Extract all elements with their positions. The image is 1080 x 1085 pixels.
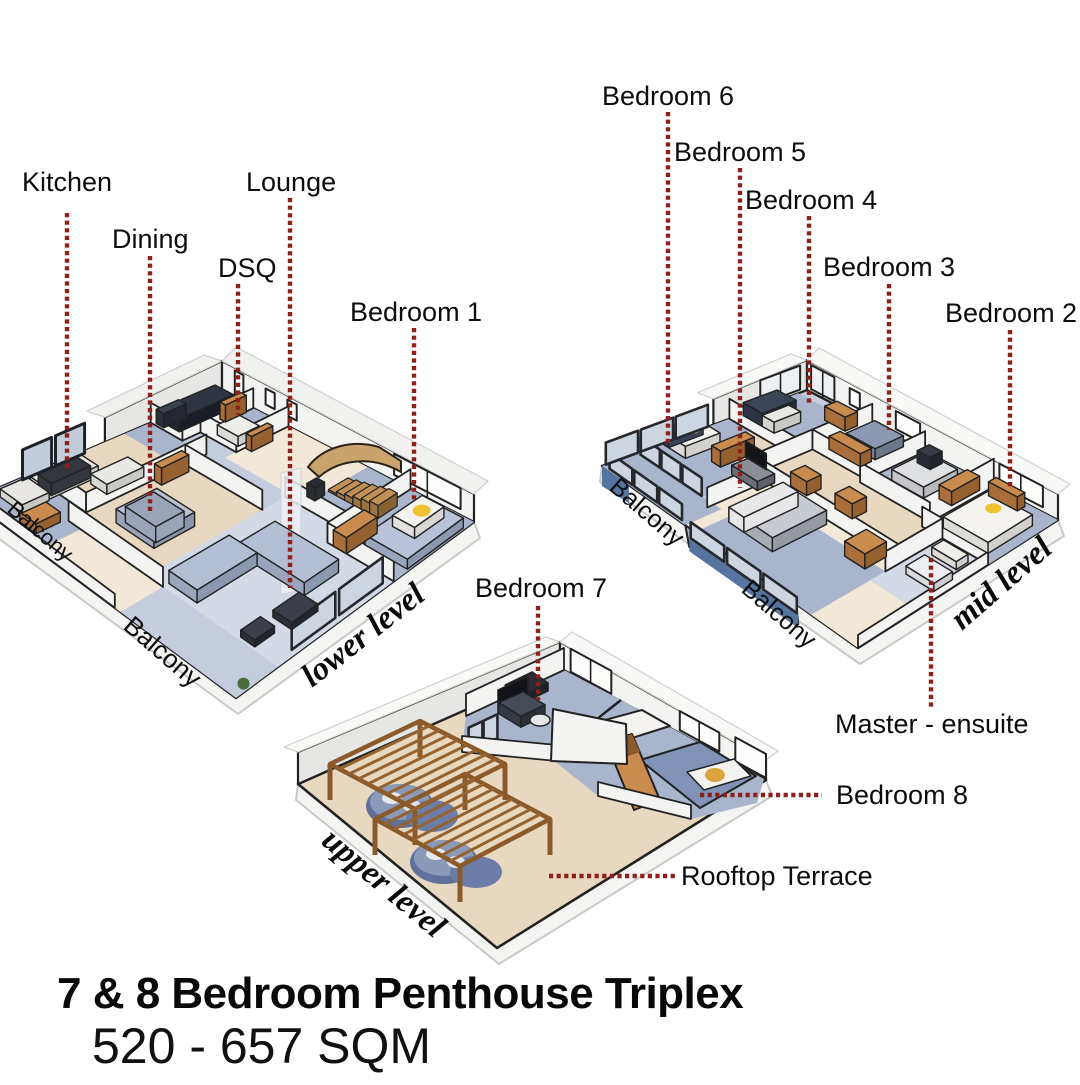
svg-text:Dining: Dining — [112, 224, 189, 254]
svg-text:7 & 8 Bedroom Penthouse Triple: 7 & 8 Bedroom Penthouse Triplex — [57, 969, 744, 1018]
svg-text:Master - ensuite: Master - ensuite — [835, 709, 1029, 739]
svg-text:Bedroom 1: Bedroom 1 — [350, 297, 482, 327]
svg-text:Kitchen: Kitchen — [22, 167, 112, 197]
svg-text:Bedroom 5: Bedroom 5 — [674, 137, 806, 167]
svg-text:520 - 657 SQM: 520 - 657 SQM — [92, 1018, 431, 1074]
svg-text:Rooftop Terrace: Rooftop Terrace — [681, 861, 873, 891]
svg-text:Bedroom 3: Bedroom 3 — [823, 252, 955, 282]
svg-text:Lounge: Lounge — [246, 167, 336, 197]
svg-text:Bedroom 2: Bedroom 2 — [945, 298, 1077, 328]
svg-text:Bedroom 4: Bedroom 4 — [745, 185, 877, 215]
svg-text:DSQ: DSQ — [218, 253, 277, 283]
svg-text:Bedroom 7: Bedroom 7 — [475, 573, 607, 603]
svg-text:Bedroom 8: Bedroom 8 — [836, 780, 968, 810]
svg-text:Bedroom 6: Bedroom 6 — [602, 81, 734, 111]
